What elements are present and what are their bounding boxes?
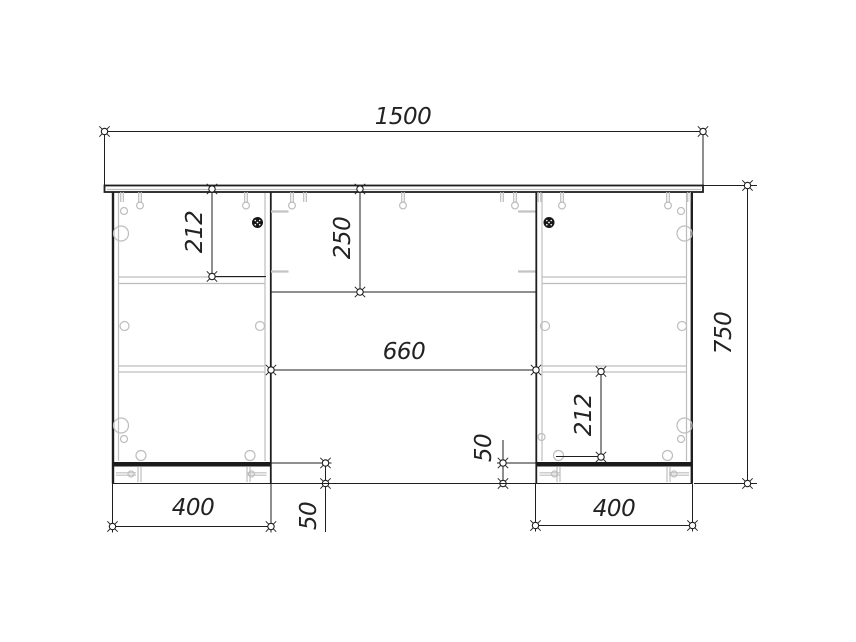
dowel-icon [538, 192, 541, 202]
dim-right-compartment-212 [556, 366, 606, 462]
screw-icon [559, 192, 566, 209]
dowel-icon [304, 192, 307, 202]
left-pedestal-bottom-panel [113, 462, 272, 467]
dim-overall-width-1500 [99, 126, 708, 185]
right-pedestal-bottom-panel [537, 462, 693, 467]
dowel-icon [688, 192, 691, 202]
dim-center-drawer-250 [355, 184, 365, 297]
dim-left-pedestal-400 [107, 484, 276, 533]
dim-left-plinth-50 [271, 458, 332, 532]
screw-icon [289, 192, 296, 209]
plinth-screw-icon [669, 471, 689, 477]
dim-knee-space-660 [266, 365, 541, 375]
drawing-canvas: 1500 750 212 250 660 212 400 400 50 50 [0, 0, 856, 642]
cam-lock-icon [252, 217, 263, 228]
cam-lock-icon [544, 217, 555, 228]
screw-icon [400, 192, 407, 209]
dowel-icon [501, 192, 504, 202]
dim-right-pedestal-400 [530, 484, 697, 532]
dim-right-plinth-50 [497, 440, 537, 489]
plinth-screw-icon [116, 471, 136, 477]
dowel-icon [121, 192, 124, 202]
center-drawer-section [271, 192, 537, 292]
left-pedestal [112, 192, 272, 484]
screw-icon [665, 192, 672, 209]
screw-icon [137, 192, 144, 209]
dim-left-drawer-212 [207, 184, 266, 282]
right-pedestal [536, 192, 693, 484]
drawing-geometry [0, 0, 856, 642]
desk-top [105, 186, 704, 193]
screw-icon [512, 192, 519, 209]
dim-overall-height-750 [694, 180, 757, 488]
screw-icon [243, 192, 250, 209]
